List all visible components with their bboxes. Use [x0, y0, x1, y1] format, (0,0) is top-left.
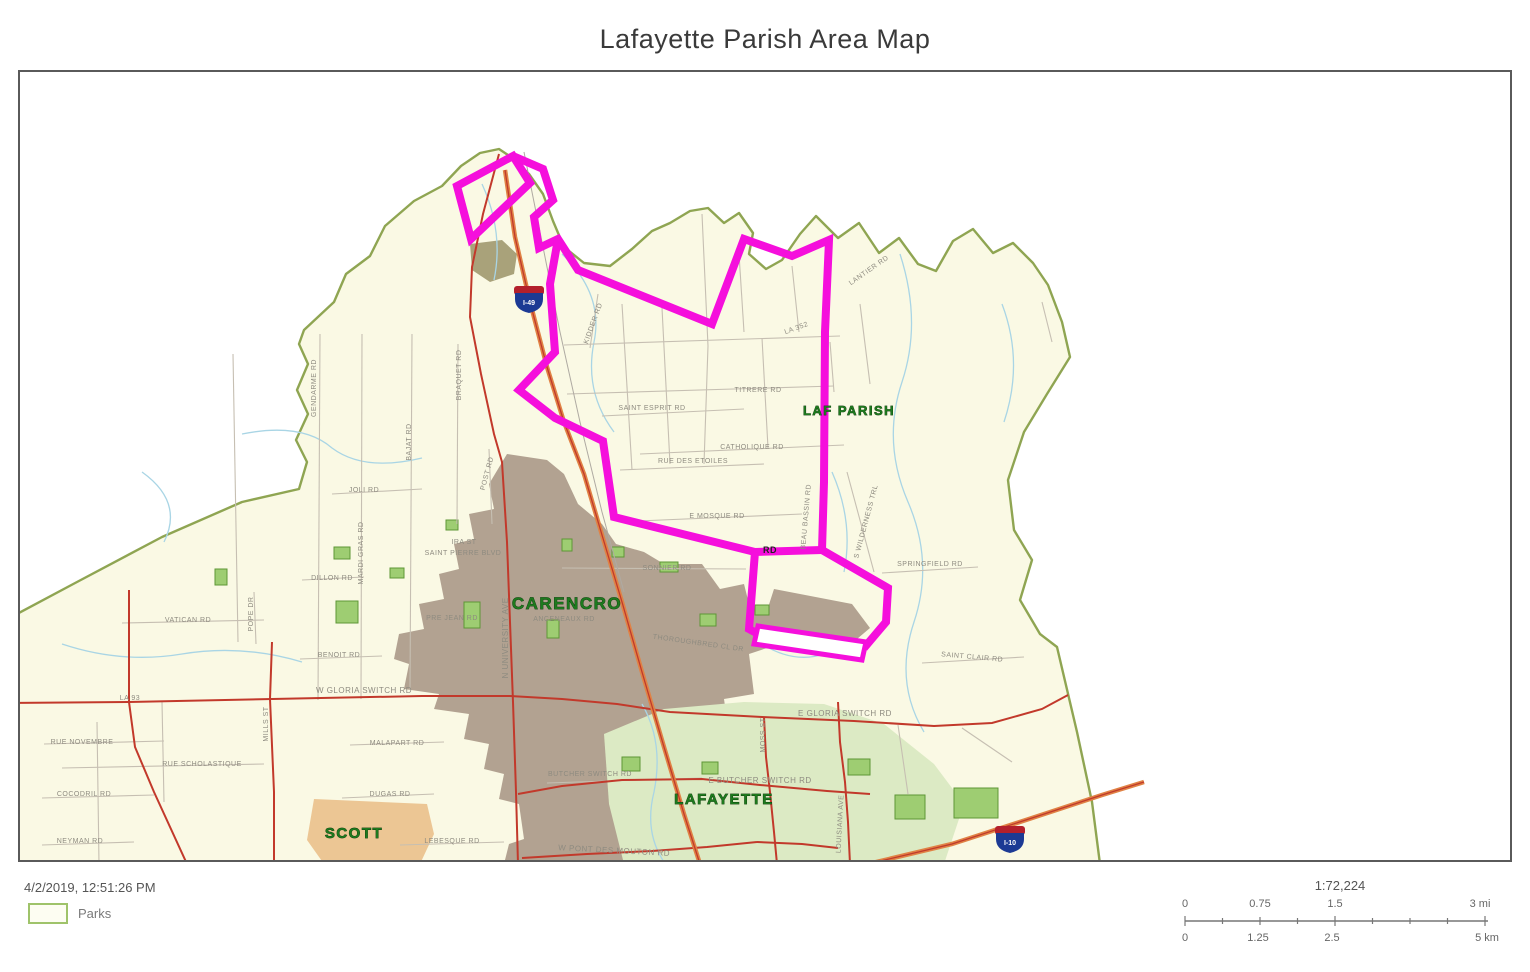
park [446, 520, 458, 530]
road-label: W GLORIA SWITCH RD [316, 686, 412, 695]
road-label: MARDI GRAS RD [358, 522, 365, 585]
road-label: COCODRIL RD [57, 791, 111, 798]
road-label: VATICAN RD [165, 617, 211, 624]
road-label: RD [763, 545, 777, 555]
city-label: CARENCRO [512, 594, 622, 613]
road-label: NEYMAN RD [57, 838, 104, 845]
road-label: BUTCHER SWITCH RD [548, 771, 632, 778]
park [622, 757, 640, 771]
road-label: GENDARME RD [311, 359, 318, 417]
road-label: DILLON RD [311, 575, 353, 582]
scale-mi-2: 1.5 [1327, 898, 1342, 910]
scale-mi-1: 0.75 [1249, 898, 1270, 910]
timestamp: 4/2/2019, 12:51:26 PM [24, 880, 156, 895]
road-label: BAJAT RD [406, 423, 413, 460]
svg-text:I-10: I-10 [1004, 840, 1016, 847]
scale-mi-0: 0 [1182, 898, 1188, 910]
road-label: RUE SCHOLASTIQUE [162, 761, 242, 768]
road-label: SONNIER RD [643, 565, 692, 572]
road-label: LA 93 [120, 695, 140, 702]
road-label: SAINT PIERRE BLVD [425, 550, 502, 557]
park [562, 539, 572, 551]
park [215, 569, 227, 585]
road-label: RUE DES ETOILES [658, 458, 728, 465]
road-label: POPE DR [248, 596, 255, 631]
park [336, 601, 358, 623]
road-label: E BUTCHER SWITCH RD [708, 776, 811, 785]
park [702, 762, 718, 774]
scale-km-2: 2.5 [1324, 932, 1339, 944]
park [954, 788, 998, 818]
city-label: LAFAYETTE [674, 791, 774, 808]
park [895, 795, 925, 819]
road-label: DUGAS RD [370, 791, 411, 798]
road-label: E GLORIA SWITCH RD [798, 709, 892, 718]
city-label: LAF PARISH [803, 403, 895, 418]
map-frame: I-49I-10GENDARME RDBRAQUET RDBAJAT RDJOL… [18, 70, 1512, 862]
city-label: SCOTT [325, 825, 383, 842]
park [848, 759, 870, 775]
road-label: JOLI RD [349, 487, 379, 494]
road-label: MOSS ST [760, 717, 767, 752]
road-label: MILLS ST [263, 706, 270, 741]
page: Lafayette Parish Area Map I-49I-10GENDAR… [0, 0, 1530, 972]
road-label: N UNIVERSITY AVE [501, 597, 510, 678]
road-label: BENOIT RD [318, 652, 361, 659]
road-label: BRAQUET RD [456, 350, 463, 401]
park [755, 605, 769, 615]
road-label: ANCENEAUX RD [533, 616, 595, 623]
parks-swatch-icon [28, 903, 68, 924]
road-label: MALAPART RD [370, 740, 425, 747]
stream [142, 472, 170, 542]
scale-bar [1180, 914, 1500, 928]
map-canvas: I-49I-10GENDARME RDBRAQUET RDBAJAT RDJOL… [20, 72, 1510, 860]
park [334, 547, 350, 559]
scale-km-1: 1.25 [1247, 932, 1268, 944]
road-label: RUE NOVEMBRE [51, 739, 114, 746]
road-label: TITRERE RD [735, 387, 782, 394]
scale-km-3: 5 km [1475, 932, 1499, 944]
road-label: SPRINGFIELD RD [897, 561, 963, 568]
scale-ratio: 1:72,224 [1285, 878, 1395, 893]
road-label: SAINT ESPRIT RD [618, 405, 685, 412]
scale-mi-3: 3 mi [1470, 898, 1491, 910]
road-label: E MOSQUE RD [689, 513, 744, 520]
park [700, 614, 716, 626]
map-title: Lafayette Parish Area Map [0, 24, 1530, 55]
scale-km-0: 0 [1182, 932, 1188, 944]
park [390, 568, 404, 578]
road-label: CATHOLIQUE RD [720, 444, 784, 451]
legend-parks: Parks [28, 903, 111, 924]
svg-text:I-49: I-49 [523, 300, 535, 307]
road-label: IRA ST [451, 539, 476, 546]
road-label: PRE JEAN RD [426, 615, 478, 622]
road-label: LEBESQUE RD [424, 838, 479, 845]
legend-label: Parks [78, 906, 111, 921]
